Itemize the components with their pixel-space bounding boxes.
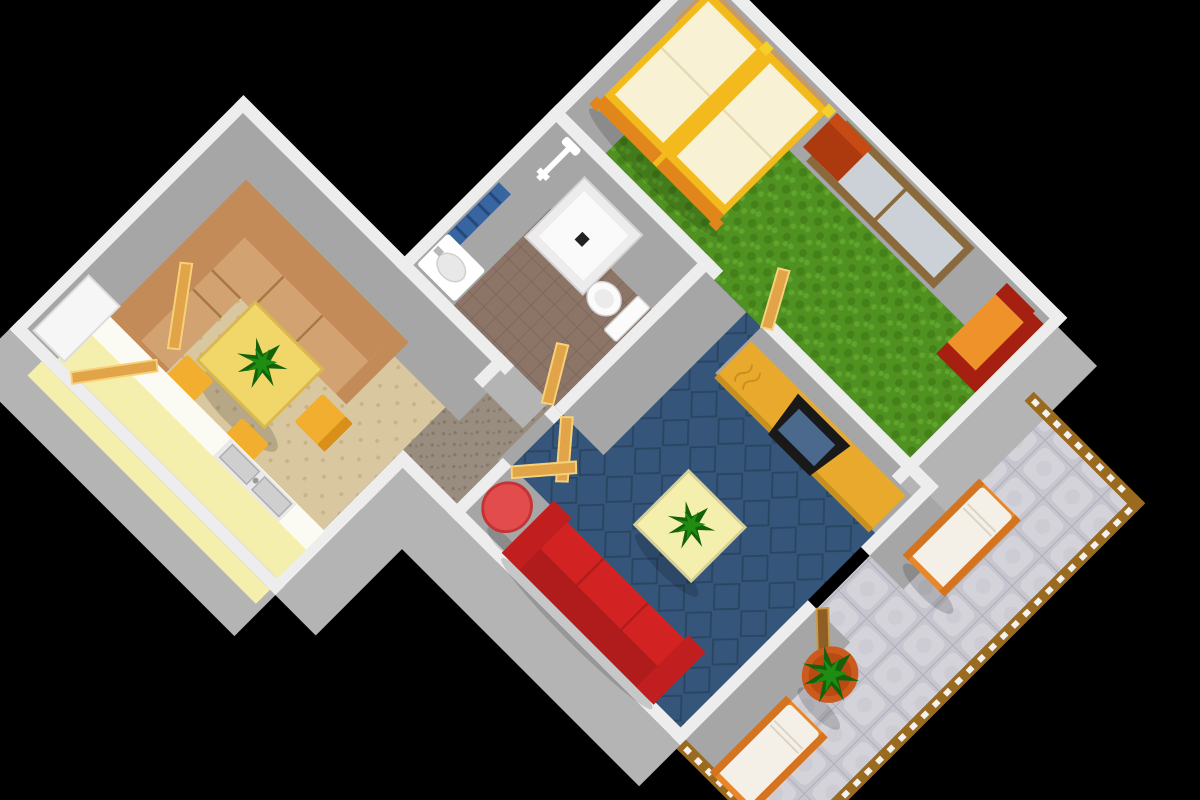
apartment-3d-render xyxy=(0,0,1200,800)
